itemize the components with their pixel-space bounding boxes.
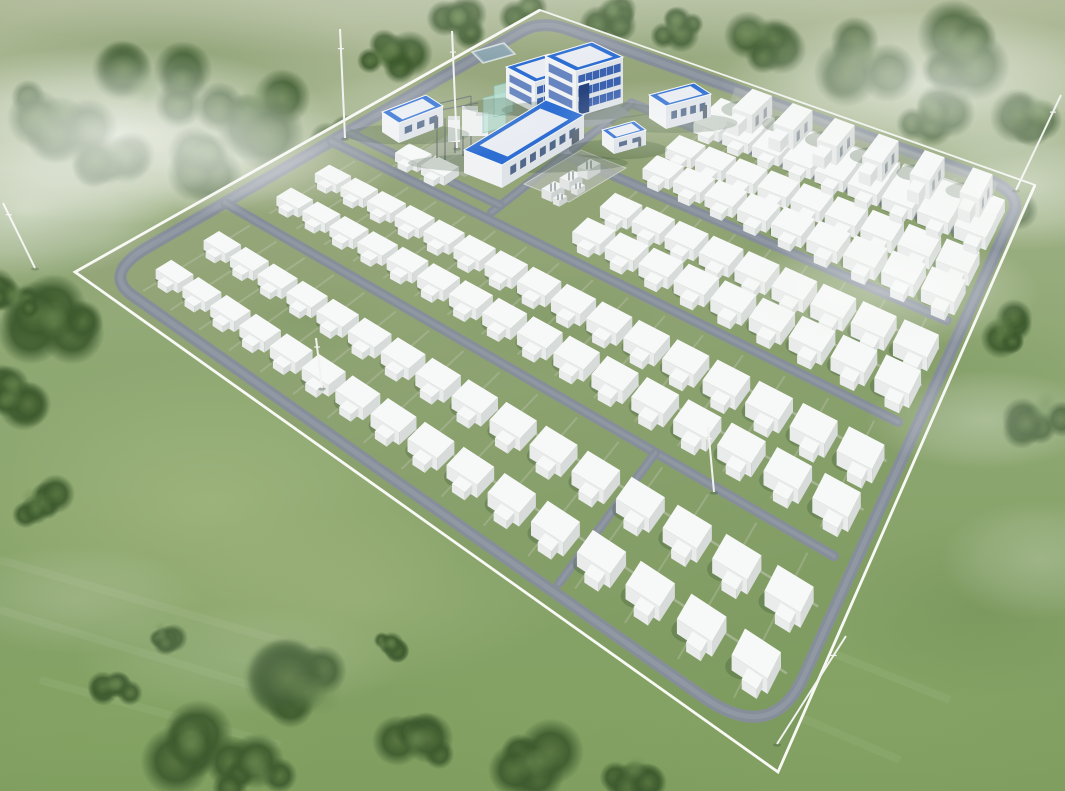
facility-rendering [0,0,1065,791]
window-mullion [543,85,544,93]
fog-patch [720,230,1040,350]
window-mullion [585,74,586,83]
energy-storage-plant-scene [0,0,1065,791]
window-mullion [592,72,593,81]
tree-highlight [248,761,275,788]
window-mullion [599,69,600,78]
tree-highlight [21,487,41,507]
tree-highlight [403,729,427,753]
fog-patch [70,605,410,715]
fog-patch [550,80,770,160]
tree-highlight [173,728,208,763]
tree-highlight [626,755,649,778]
window-mullion [606,67,607,76]
window-mullion [613,65,614,74]
tree-highlight [514,747,545,778]
tree-highlight [3,372,27,396]
tree-cluster [372,712,454,769]
tree-highlight [7,288,28,309]
tree-highlight [38,308,69,339]
fog-patch [290,70,550,160]
